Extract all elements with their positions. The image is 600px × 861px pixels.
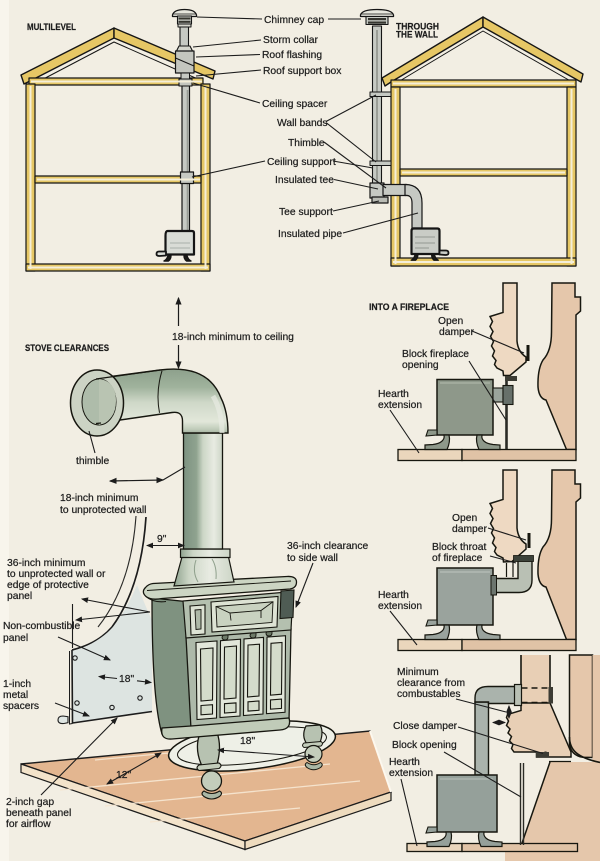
svg-text:9": 9" bbox=[157, 534, 167, 545]
svg-text:Roof flashing: Roof flashing bbox=[262, 50, 322, 61]
svg-text:18-inch minimum: 18-inch minimum bbox=[60, 493, 138, 504]
svg-text:opening: opening bbox=[402, 360, 439, 371]
svg-text:Tee support: Tee support bbox=[279, 207, 333, 218]
svg-text:Storm collar: Storm collar bbox=[263, 35, 318, 46]
svg-text:extension: extension bbox=[389, 768, 433, 779]
svg-text:INTO A FIREPLACE: INTO A FIREPLACE bbox=[369, 302, 449, 312]
svg-text:Insulated tee: Insulated tee bbox=[275, 175, 334, 186]
svg-text:36-inch minimum: 36-inch minimum bbox=[7, 558, 85, 569]
svg-text:THE WALL: THE WALL bbox=[396, 30, 438, 40]
svg-text:Open: Open bbox=[438, 316, 463, 327]
svg-text:Hearth: Hearth bbox=[378, 389, 409, 400]
svg-text:beneath panel: beneath panel bbox=[6, 808, 71, 819]
svg-text:damper: damper bbox=[439, 327, 474, 338]
svg-text:to unprotected wall or: to unprotected wall or bbox=[7, 569, 106, 580]
svg-text:Open: Open bbox=[452, 513, 477, 524]
svg-text:thimble: thimble bbox=[76, 456, 109, 467]
svg-text:Wall bands: Wall bands bbox=[277, 118, 328, 129]
svg-text:Chimney cap: Chimney cap bbox=[264, 15, 324, 26]
svg-text:MULTILEVEL: MULTILEVEL bbox=[27, 22, 76, 32]
svg-text:extension: extension bbox=[378, 400, 422, 411]
svg-text:2-inch gap: 2-inch gap bbox=[6, 797, 54, 808]
svg-text:18-inch minimum to ceiling: 18-inch minimum to ceiling bbox=[172, 332, 294, 343]
svg-text:18": 18" bbox=[119, 674, 134, 685]
svg-text:Hearth: Hearth bbox=[378, 590, 409, 601]
svg-text:Minimum: Minimum bbox=[397, 667, 439, 678]
svg-text:Insulated pipe: Insulated pipe bbox=[278, 229, 342, 240]
svg-text:metal: metal bbox=[3, 690, 28, 701]
svg-text:panel: panel bbox=[3, 633, 28, 644]
svg-text:to side wall: to side wall bbox=[287, 553, 338, 564]
svg-text:18": 18" bbox=[240, 736, 255, 747]
svg-text:damper: damper bbox=[452, 524, 487, 535]
svg-text:clearance from: clearance from bbox=[397, 678, 465, 689]
svg-text:Hearth: Hearth bbox=[389, 757, 420, 768]
svg-text:Roof support box: Roof support box bbox=[263, 66, 342, 77]
svg-text:to unprotected wall: to unprotected wall bbox=[60, 505, 146, 516]
svg-text:Block fireplace: Block fireplace bbox=[402, 349, 469, 360]
svg-text:of fireplace: of fireplace bbox=[432, 553, 483, 564]
svg-text:1-inch: 1-inch bbox=[3, 679, 31, 690]
svg-text:extension: extension bbox=[378, 601, 422, 612]
svg-text:STOVE CLEARANCES: STOVE CLEARANCES bbox=[25, 343, 109, 353]
svg-text:Ceiling support: Ceiling support bbox=[267, 157, 336, 168]
svg-text:Thimble: Thimble bbox=[288, 138, 325, 149]
svg-text:combustables: combustables bbox=[397, 689, 461, 700]
svg-text:Block opening: Block opening bbox=[392, 740, 457, 751]
svg-text:for airflow: for airflow bbox=[6, 819, 51, 830]
svg-text:36-inch clearance: 36-inch clearance bbox=[287, 541, 369, 552]
svg-text:Non-combustible: Non-combustible bbox=[3, 621, 81, 632]
svg-text:Close damper: Close damper bbox=[393, 721, 458, 732]
svg-text:Ceiling spacer: Ceiling spacer bbox=[262, 99, 328, 110]
svg-text:Block throat: Block throat bbox=[432, 542, 487, 553]
svg-text:panel: panel bbox=[7, 591, 32, 602]
svg-text:spacers: spacers bbox=[3, 701, 39, 712]
svg-text:edge of protective: edge of protective bbox=[7, 580, 89, 591]
